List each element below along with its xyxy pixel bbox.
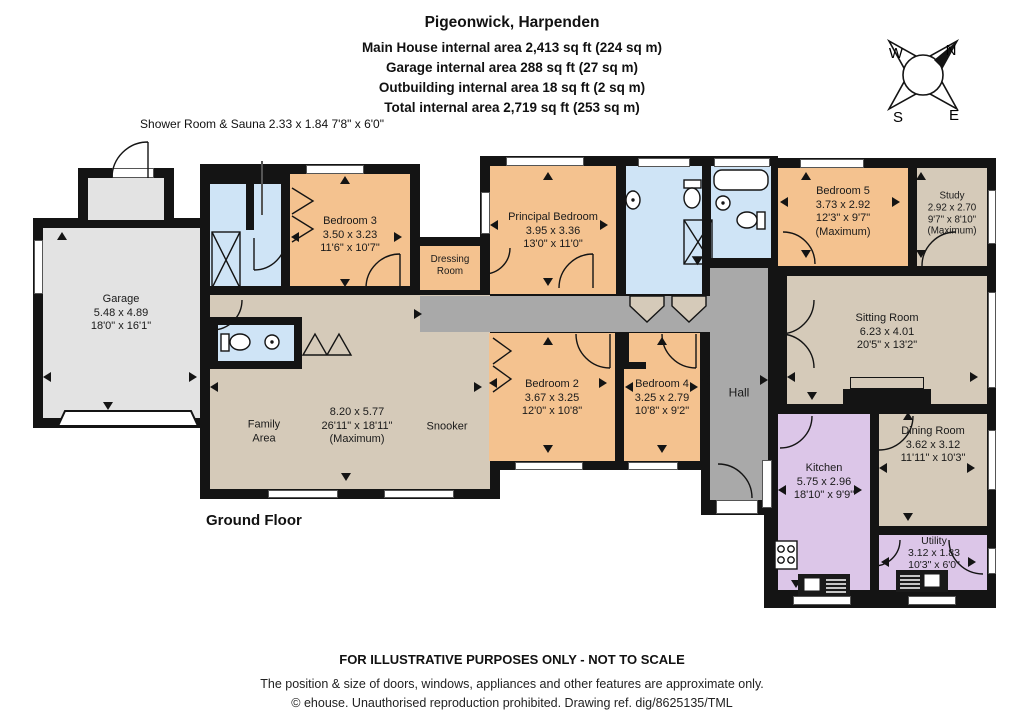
- room-label-bedroom-2: Bedroom 23.67 x 3.2512'0" x 10'8": [522, 378, 582, 419]
- annotation-leader-line: [261, 161, 263, 215]
- annotation-imperial: 7'8" x 6'0": [332, 117, 384, 131]
- bathtub-icon: [714, 170, 768, 190]
- room-label-utility: Utility3.12 x 1.8310'3" x 6'0": [908, 535, 960, 571]
- cupboard-door: [630, 296, 706, 322]
- floorplan-page: Pigeonwick, Harpenden Main House interna…: [0, 0, 1024, 724]
- room-label-bedroom-3: Bedroom 33.50 x 3.2311'6" x 10'7": [320, 215, 380, 256]
- disclaimer-line-3: © ehouse. Unauthorised reproduction proh…: [0, 694, 1024, 713]
- room-label-principal-bedroom: Principal Bedroom3.95 x 3.3613'0" x 11'0…: [508, 211, 598, 252]
- room-label-snooker: Snooker: [427, 420, 468, 434]
- room-label-sitting-room: Sitting Room6.23 x 4.0120'5" x 13'2": [856, 312, 919, 353]
- garage-door-icon: [58, 411, 198, 426]
- room-label-study: Study2.92 x 2.709'7" x 8'10"(Maximum): [928, 190, 977, 237]
- utility-sink-unit-icon: [896, 570, 948, 592]
- kitchen-sink-unit-icon: [798, 574, 850, 596]
- room-label-bedroom-4: Bedroom 43.25 x 2.7910'8" x 9'2": [635, 378, 689, 419]
- room-label-bedroom-5: Bedroom 53.73 x 2.9212'3" x 9'7"(Maximum…: [816, 185, 871, 239]
- shower-room-annotation: Shower Room & Sauna 2.33 x 1.84 7'8" x 6…: [140, 117, 384, 132]
- room-label-family-area: Family Area: [235, 419, 293, 446]
- room-label-dressing-room: Dressing Room: [421, 254, 479, 278]
- disclaimer-line-2: The position & size of doors, windows, a…: [0, 675, 1024, 694]
- floor-label: Ground Floor: [206, 512, 302, 529]
- toilet-icon: [221, 180, 765, 351]
- disclaimer-block: FOR ILLUSTRATIVE PURPOSES ONLY - NOT TO …: [0, 652, 1024, 713]
- annotation-name: Shower Room & Sauna: [140, 117, 265, 131]
- room-label-hall: Hall: [729, 386, 750, 400]
- room-label-kitchen: Kitchen5.75 x 2.9618'10" x 9'9": [794, 462, 854, 503]
- fixtures-layer: [0, 0, 1024, 724]
- room-label-dining-room: Dining Room3.62 x 3.1211'11" x 10'3": [901, 425, 966, 466]
- hob-icon: [775, 541, 797, 569]
- room-label-garage: Garage5.48 x 4.8918'0" x 16'1": [91, 293, 151, 334]
- annotation-metric: 2.33 x 1.84: [269, 117, 328, 131]
- room-label-family-dimensions: 8.20 x 5.7726'11" x 18'11"(Maximum): [322, 406, 393, 447]
- disclaimer-line-1: FOR ILLUSTRATIVE PURPOSES ONLY - NOT TO …: [0, 652, 1024, 667]
